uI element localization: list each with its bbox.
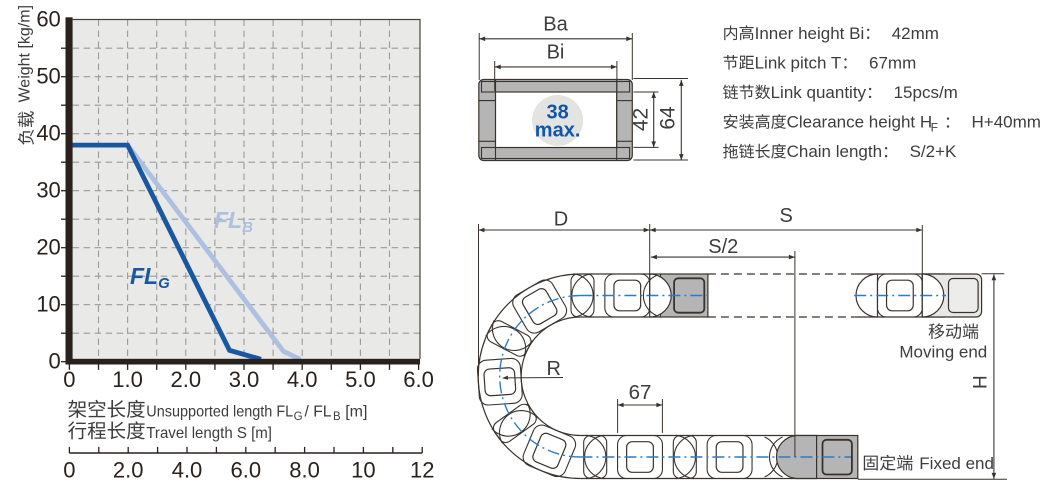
svg-text:B: B: [333, 411, 341, 423]
svg-text:Fixed end: Fixed end: [919, 454, 994, 473]
svg-text:10: 10: [36, 292, 60, 317]
svg-text:60: 60: [36, 7, 60, 32]
svg-text:4.0: 4.0: [287, 367, 318, 392]
svg-text:0: 0: [49, 349, 61, 374]
svg-text:8.0: 8.0: [289, 457, 320, 482]
svg-text:Travel length S [m]: Travel length S [m]: [146, 425, 272, 442]
svg-text:6.0: 6.0: [231, 457, 262, 482]
svg-text:50: 50: [36, 64, 60, 89]
svg-text:42mm: 42mm: [892, 24, 939, 43]
svg-text:Link quantity: Link quantity: [771, 83, 867, 102]
svg-text:F: F: [931, 121, 938, 135]
svg-text:Link pitch T: Link pitch T: [755, 53, 842, 72]
svg-text:67: 67: [629, 381, 652, 404]
svg-text:Moving end: Moving end: [899, 343, 987, 362]
svg-text:Weight [kg/m]: Weight [kg/m]: [17, 5, 34, 103]
svg-text:30: 30: [36, 178, 60, 203]
svg-text:20: 20: [36, 235, 60, 260]
svg-text:10: 10: [351, 457, 375, 482]
svg-text:6.0: 6.0: [403, 367, 434, 392]
svg-text:S/2+K: S/2+K: [910, 142, 957, 161]
svg-text:/ FL: / FL: [305, 403, 332, 420]
svg-text:0: 0: [63, 457, 75, 482]
svg-text:R: R: [547, 358, 561, 380]
svg-text:64: 64: [657, 106, 680, 130]
svg-text:Ba: Ba: [543, 14, 568, 36]
svg-text:H+40mm: H+40mm: [972, 113, 1041, 132]
svg-text:15pcs/m: 15pcs/m: [894, 83, 958, 102]
svg-text:67mm: 67mm: [869, 53, 916, 72]
svg-text:2.0: 2.0: [113, 457, 144, 482]
svg-text:0: 0: [63, 367, 75, 392]
svg-text:1.0: 1.0: [112, 367, 143, 392]
svg-text:40: 40: [36, 121, 60, 146]
svg-text:D: D: [554, 209, 568, 231]
svg-text:Unsupported length FL: Unsupported length FL: [146, 403, 293, 420]
svg-text:42: 42: [630, 108, 653, 131]
svg-text:Clearance height H: Clearance height H: [787, 113, 933, 132]
svg-text:12: 12: [410, 457, 434, 482]
svg-text:G: G: [294, 411, 303, 423]
svg-text:H: H: [971, 375, 992, 389]
svg-text:3.0: 3.0: [229, 367, 260, 392]
svg-text:S: S: [780, 205, 793, 227]
svg-text:Inner height Bi: Inner height Bi: [755, 24, 865, 43]
svg-text:[m]: [m]: [345, 403, 367, 420]
svg-text:4.0: 4.0: [172, 457, 203, 482]
svg-text:Chain length: Chain length: [787, 142, 882, 161]
svg-text:max.: max.: [535, 120, 581, 142]
svg-text:2.0: 2.0: [171, 367, 202, 392]
svg-text:Bi: Bi: [547, 42, 565, 64]
svg-text:S/2: S/2: [708, 236, 738, 258]
svg-text:5.0: 5.0: [345, 367, 376, 392]
